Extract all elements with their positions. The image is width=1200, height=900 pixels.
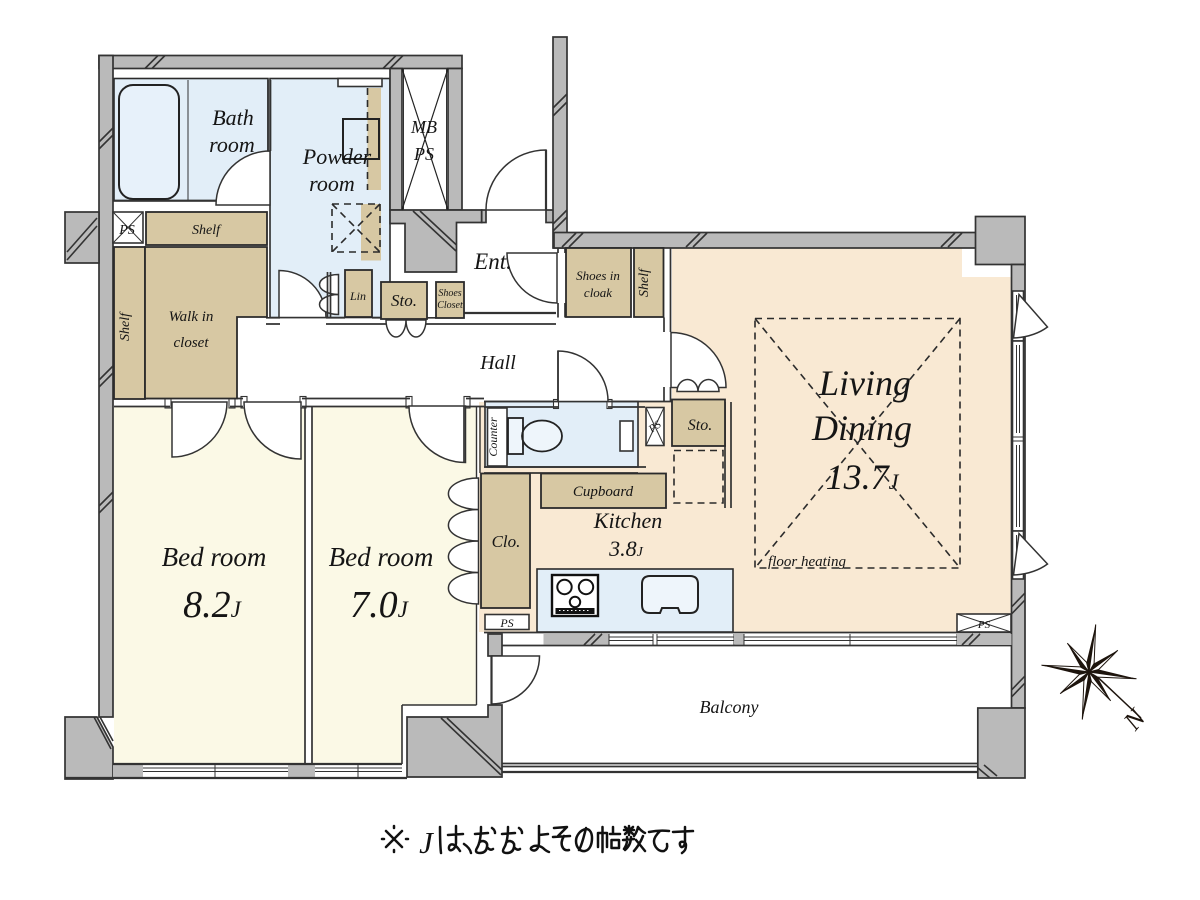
svg-text:Bed room: Bed room	[329, 542, 434, 572]
svg-text:floor heating: floor heating	[768, 554, 846, 570]
svg-text:Counter: Counter	[486, 417, 500, 457]
svg-text:J: J	[419, 825, 434, 860]
svg-text:Clo.: Clo.	[492, 532, 521, 551]
svg-text:Shelf: Shelf	[637, 267, 652, 297]
svg-text:PS: PS	[977, 619, 991, 631]
svg-text:Hall: Hall	[479, 352, 516, 374]
svg-text:Shelf: Shelf	[118, 311, 133, 341]
svg-text:Sto.: Sto.	[688, 417, 712, 434]
svg-text:cloak: cloak	[584, 285, 612, 300]
svg-text:13.7J: 13.7J	[826, 457, 900, 497]
svg-text:Closet: Closet	[437, 300, 463, 311]
svg-text:MB: MB	[410, 117, 437, 137]
svg-text:Dining: Dining	[811, 408, 912, 448]
svg-text:Shoes: Shoes	[438, 288, 461, 299]
svg-text:PS: PS	[413, 144, 434, 164]
svg-text:Cupboard: Cupboard	[573, 484, 634, 500]
svg-text:Shelf: Shelf	[192, 223, 222, 238]
svg-text:room: room	[309, 171, 355, 196]
svg-text:room: room	[209, 132, 255, 157]
svg-text:Powder: Powder	[302, 144, 372, 169]
svg-text:closet: closet	[174, 335, 210, 351]
svg-text:PS: PS	[499, 616, 513, 630]
svg-text:Lin: Lin	[349, 289, 366, 303]
svg-text:Kitchen: Kitchen	[593, 508, 662, 533]
svg-text:Sto.: Sto.	[391, 291, 417, 310]
svg-text:Living: Living	[818, 363, 911, 403]
svg-text:Shoes in: Shoes in	[576, 268, 620, 283]
svg-text:Bed room: Bed room	[162, 542, 267, 572]
svg-text:Balcony: Balcony	[700, 697, 759, 717]
svg-text:Walk in: Walk in	[169, 309, 214, 325]
svg-text:Ent.: Ent.	[473, 249, 512, 274]
svg-text:PS: PS	[118, 223, 135, 238]
svg-text:Bath: Bath	[212, 105, 254, 130]
